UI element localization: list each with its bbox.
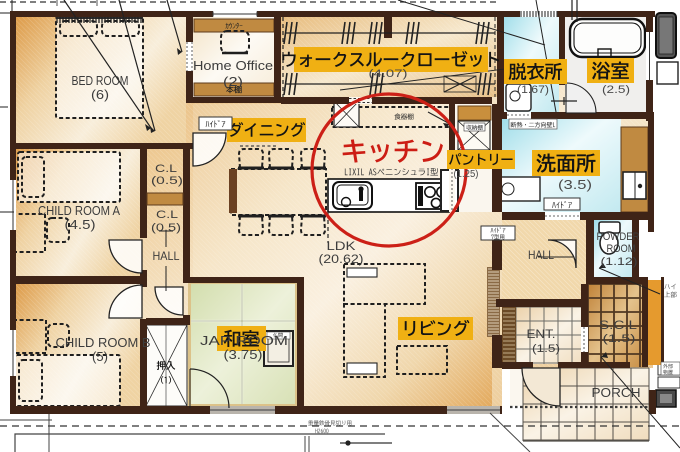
svg-text:(5): (5): [92, 350, 108, 364]
svg-text:(0.5): (0.5): [151, 222, 181, 234]
svg-text:HALL: HALL: [153, 249, 180, 263]
svg-text:C.L: C.L: [156, 209, 178, 221]
svg-text:(0.5): (0.5): [151, 175, 183, 187]
svg-text:CHILD ROOM B: CHILD ROOM B: [56, 335, 151, 350]
svg-text:(1.25): (1.25): [454, 169, 479, 180]
svg-text:BED ROOM: BED ROOM: [72, 73, 129, 88]
svg-text:PORCH: PORCH: [592, 386, 641, 400]
svg-text:(2): (2): [223, 74, 243, 89]
svg-text:(1.67): (1.67): [517, 84, 549, 96]
svg-text:JAP ROOM: JAP ROOM: [200, 333, 288, 348]
svg-text:ROOM: ROOM: [607, 243, 636, 255]
svg-text:LDK: LDK: [327, 239, 356, 253]
svg-text:(4.5): (4.5): [65, 218, 96, 232]
svg-text:(1.12): (1.12): [601, 256, 638, 268]
svg-text:(3.75): (3.75): [224, 348, 263, 362]
svg-text:CHILD ROOM A: CHILD ROOM A: [38, 203, 120, 218]
svg-text:(6): (6): [91, 87, 109, 102]
svg-text:Home Office: Home Office: [193, 58, 273, 73]
svg-text:S.C.L: S.C.L: [599, 318, 637, 332]
svg-text:ENT.: ENT.: [527, 327, 556, 341]
svg-text:(20.62): (20.62): [319, 254, 364, 266]
svg-text:(1.5): (1.5): [603, 333, 636, 345]
svg-text:(2.5): (2.5): [602, 84, 630, 96]
svg-text:C.L: C.L: [155, 163, 177, 175]
svg-text:(4.07): (4.07): [369, 68, 408, 80]
svg-text:(3.5): (3.5): [558, 177, 592, 192]
svg-text:(1.5): (1.5): [532, 343, 560, 355]
svg-text:POWDER: POWDER: [597, 231, 640, 243]
svg-text:HALL: HALL: [528, 248, 554, 262]
